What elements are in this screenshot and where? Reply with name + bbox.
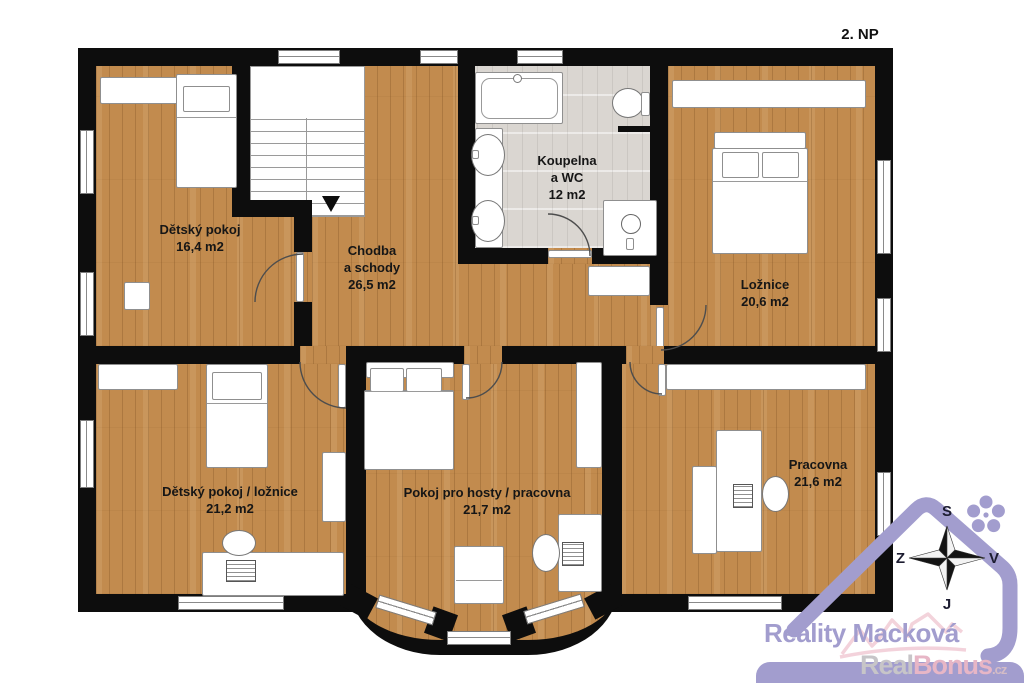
room-label-pokoj-pro-hosty: Pokoj pro hosty / pracovna 21,7 m2 <box>377 485 597 519</box>
pillow <box>762 152 799 178</box>
room-label-loznice: Ložnice 20,6 m2 <box>715 277 815 311</box>
watermark-part1: Real <box>860 650 913 680</box>
desk <box>202 552 344 596</box>
toilet-tank <box>641 92 650 116</box>
cabinet <box>666 364 866 390</box>
wardrobe <box>98 364 178 390</box>
sink-tap <box>472 150 479 159</box>
chair <box>532 534 560 572</box>
compass-east-label: V <box>989 550 999 567</box>
compass-rose: S V J Z <box>890 502 1004 614</box>
watermark-part2: Bonus <box>913 650 992 680</box>
room-area: 16,4 m2 <box>176 239 224 254</box>
room-name: Chodba a schody <box>344 243 400 275</box>
wardrobe <box>576 362 602 468</box>
bed-headboard <box>714 132 806 149</box>
room-name: Pokoj pro hosty / pracovna <box>404 485 571 500</box>
room-label-koupelna: Koupelna a WC 12 m2 <box>512 153 622 204</box>
wardrobe <box>100 77 178 104</box>
room-name: Ložnice <box>741 277 789 292</box>
pillow <box>406 368 442 392</box>
room-area: 26,5 m2 <box>348 277 396 292</box>
pillow <box>722 152 759 178</box>
pillow <box>212 372 262 400</box>
compass-west-label: Z <box>896 550 905 567</box>
sink-tap <box>472 216 479 225</box>
room-label-detsky-pokoj-2: Dětský pokoj / ložnice 21,2 m2 <box>120 484 340 518</box>
pillow <box>183 86 230 112</box>
floor-level-label: 2. NP <box>820 26 900 43</box>
computer-icon <box>226 560 256 582</box>
wardrobe <box>672 80 866 108</box>
bathtub-faucet <box>513 74 522 83</box>
room-area: 20,6 m2 <box>741 294 789 309</box>
room-area: 21,2 m2 <box>206 501 254 516</box>
floor-plan: Dětský pokoj 16,4 m2 Chodba a schody 26,… <box>0 0 1024 683</box>
bed-line <box>207 403 267 404</box>
armchair <box>454 546 504 604</box>
cabinet <box>588 266 650 296</box>
shower-head-icon <box>621 214 641 234</box>
watermark-tld: .cz <box>992 662 1006 677</box>
room-area: 21,7 m2 <box>463 502 511 517</box>
room-name: Dětský pokoj <box>160 222 241 237</box>
compass-south-label: J <box>943 596 951 613</box>
room-label-detsky-pokoj-1: Dětský pokoj 16,4 m2 <box>110 222 290 256</box>
room-name: Pracovna <box>789 457 848 472</box>
watermark-realbonus: RealBonus.cz <box>860 650 1006 681</box>
wall-toilet-partition <box>618 126 662 132</box>
armchair-line <box>456 580 502 581</box>
computer-icon <box>562 542 584 566</box>
desk-small <box>124 282 150 310</box>
bed-double <box>364 390 454 470</box>
shower-stand <box>626 238 634 250</box>
room-name: Dětský pokoj / ložnice <box>162 484 298 499</box>
pillow <box>370 368 404 392</box>
side-table <box>692 466 717 554</box>
bed-line <box>177 117 236 118</box>
toilet <box>612 88 644 118</box>
bed-line <box>713 181 807 182</box>
bed-line <box>365 391 453 392</box>
computer-icon <box>733 484 753 508</box>
room-name: Koupelna a WC <box>537 153 596 185</box>
compass-north-label: S <box>942 503 952 520</box>
bathtub-inner <box>481 78 558 119</box>
room-area: 12 m2 <box>549 187 586 202</box>
chair <box>222 530 256 556</box>
agency-name: Reality Macková <box>764 618 959 649</box>
room-label-chodba: Chodba a schody 26,5 m2 <box>322 243 422 294</box>
